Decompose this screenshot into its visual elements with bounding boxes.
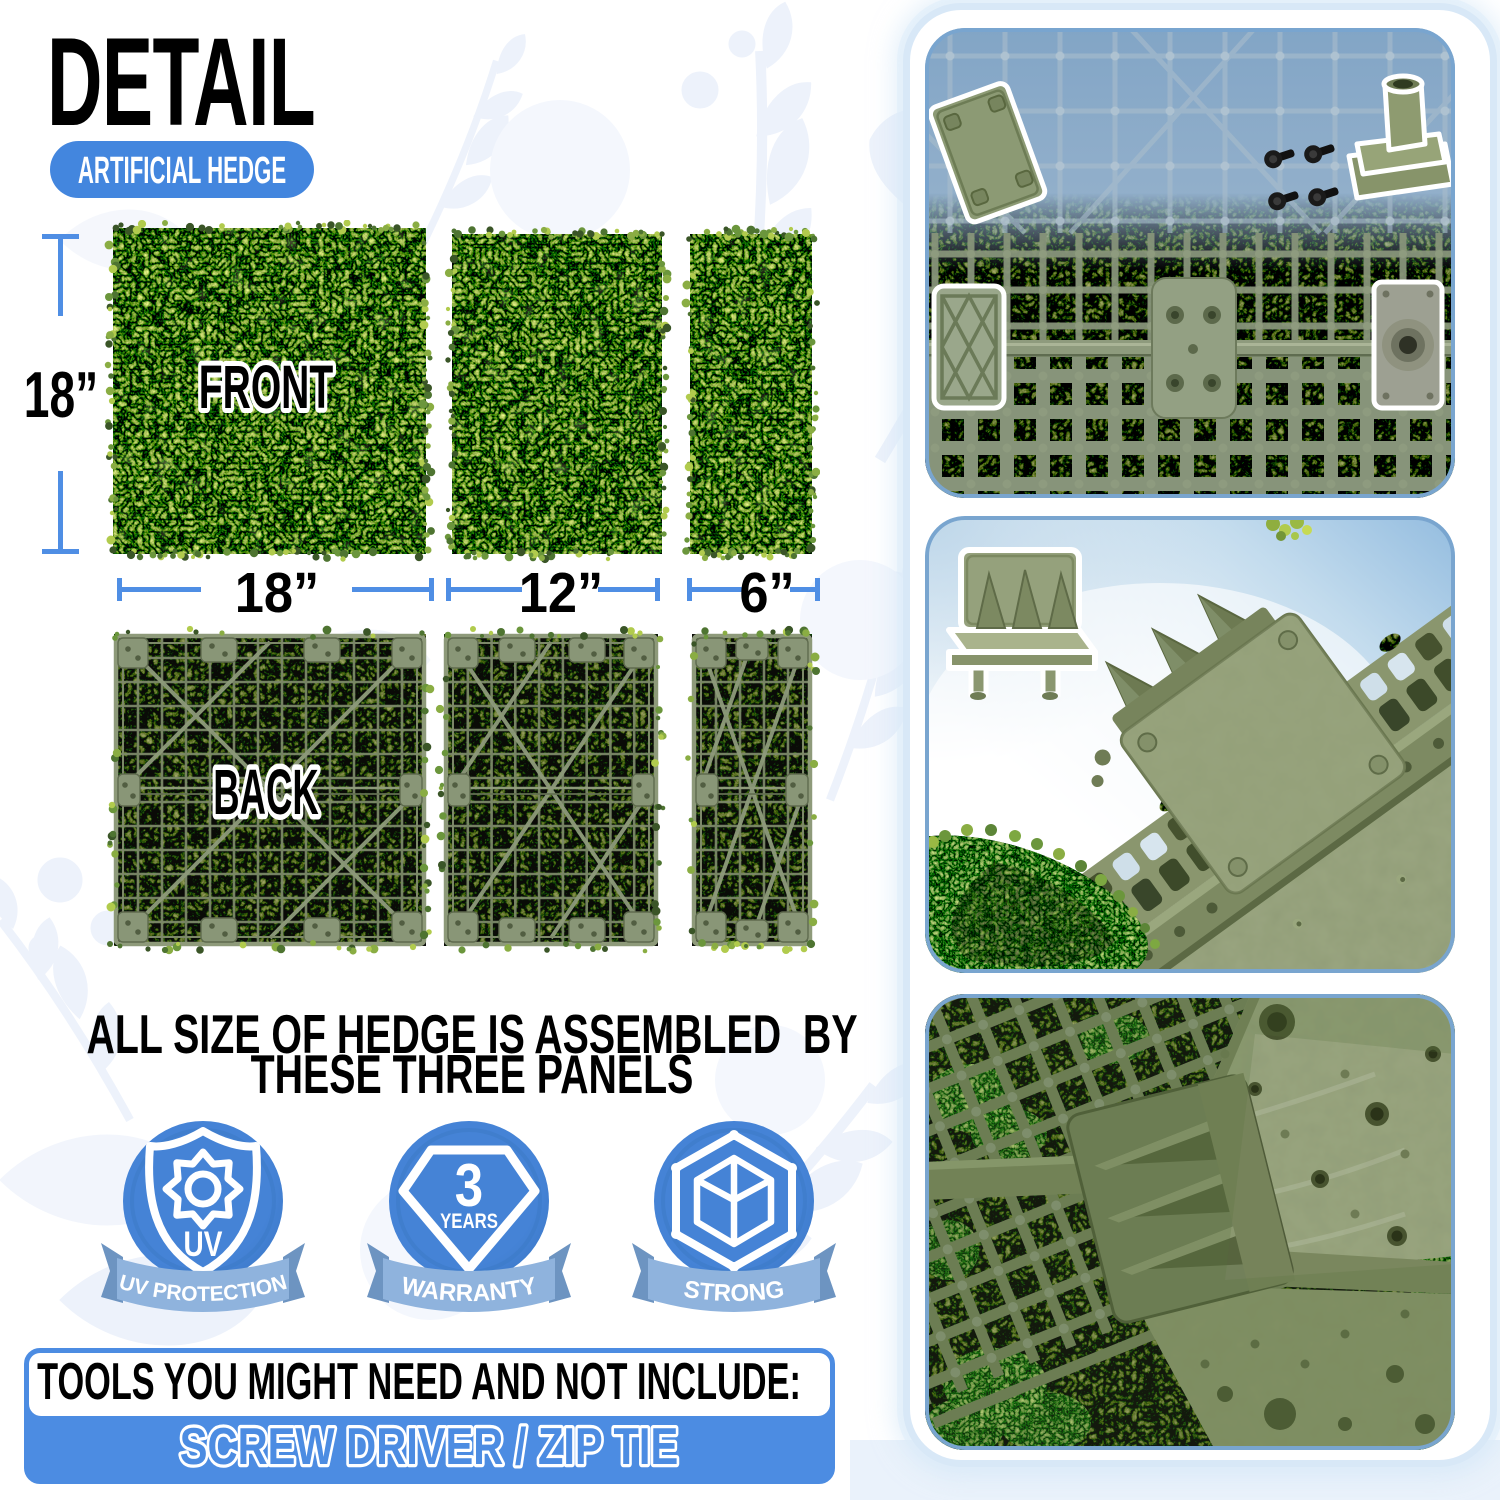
svg-text:YEARS: YEARS [440,1210,498,1233]
svg-text:FRONT: FRONT [199,353,333,421]
svg-text:THESE THREE PANELS: THESE THREE PANELS [251,1045,694,1100]
svg-text:UV: UV [184,1224,223,1264]
svg-text:STRONG: STRONG [682,1276,786,1307]
svg-text:TOOLS YOU MIGHT NEED AND NOT I: TOOLS YOU MIGHT NEED AND NOT INCLUDE: [37,1353,801,1411]
svg-text:18”: 18” [235,560,320,618]
svg-text:18”: 18” [24,358,98,422]
svg-text:3: 3 [455,1152,483,1219]
svg-text:ARTIFICIAL HEDGE: ARTIFICIAL HEDGE [78,149,286,192]
svg-text:BACK: BACK [213,757,319,828]
svg-text:6”: 6” [739,560,794,618]
svg-text:DETAIL: DETAIL [47,25,315,145]
svg-text:SCREW DRIVER / ZIP TIE: SCREW DRIVER / ZIP TIE [180,1417,678,1476]
svg-text:12”: 12” [519,560,604,618]
